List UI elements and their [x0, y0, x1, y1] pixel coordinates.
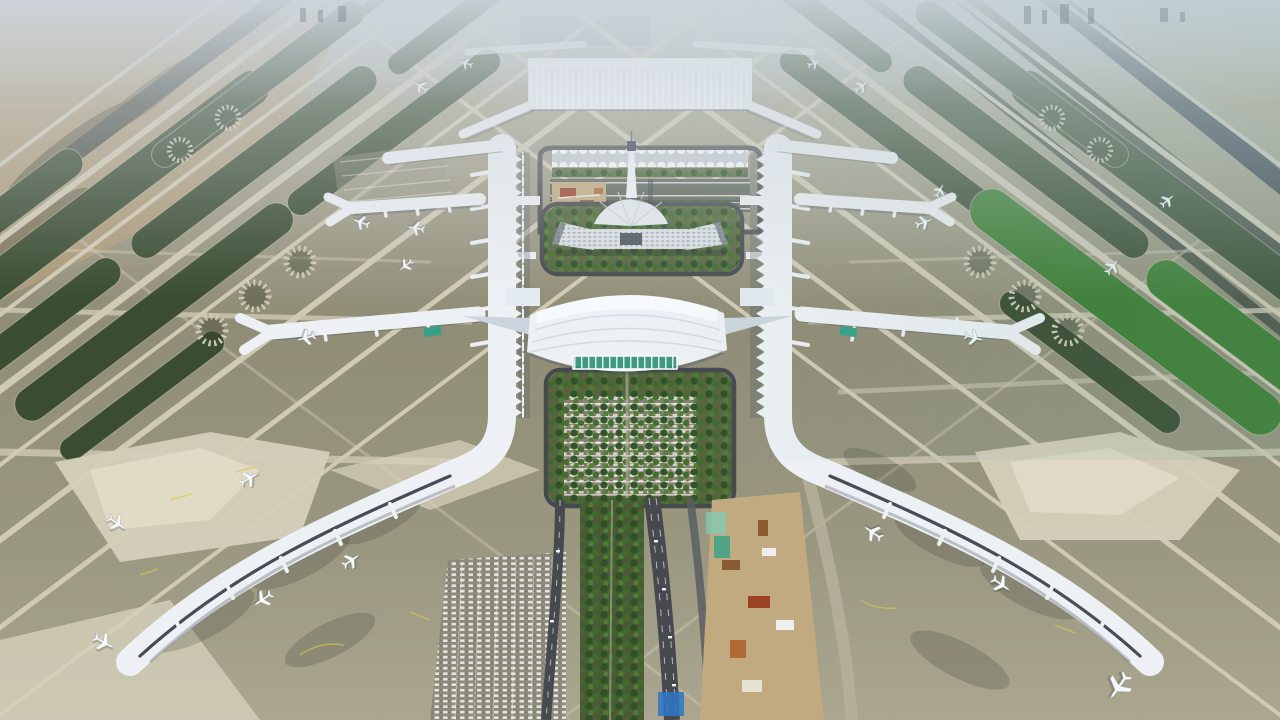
blue-tarp	[658, 692, 684, 716]
airport-aerial-photo: Hazy daytime aerial photograph looking a…	[0, 0, 1280, 720]
tree-median	[580, 498, 644, 720]
teal-haze-right	[640, 0, 1280, 460]
